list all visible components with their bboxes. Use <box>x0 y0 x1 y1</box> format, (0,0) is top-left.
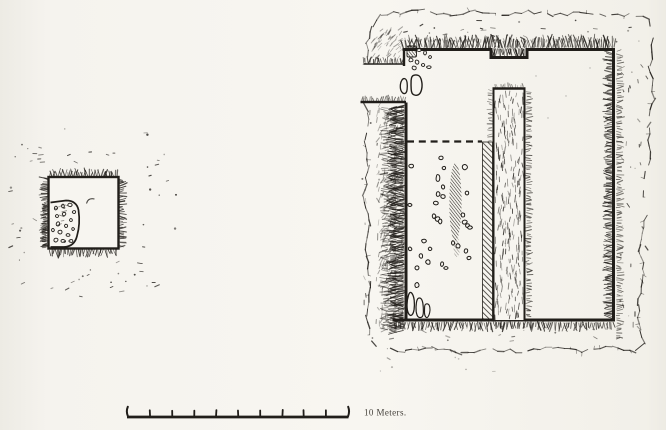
scale-label: 10 Meters. <box>364 408 407 418</box>
scanned-plan-page: 10 Meters. <box>0 0 666 430</box>
site-plan-figure: 10 Meters. <box>0 0 666 430</box>
corner-hatched-block <box>407 46 417 57</box>
hatched-wall-strip <box>483 142 493 321</box>
rubble-apse-feature <box>51 201 80 248</box>
